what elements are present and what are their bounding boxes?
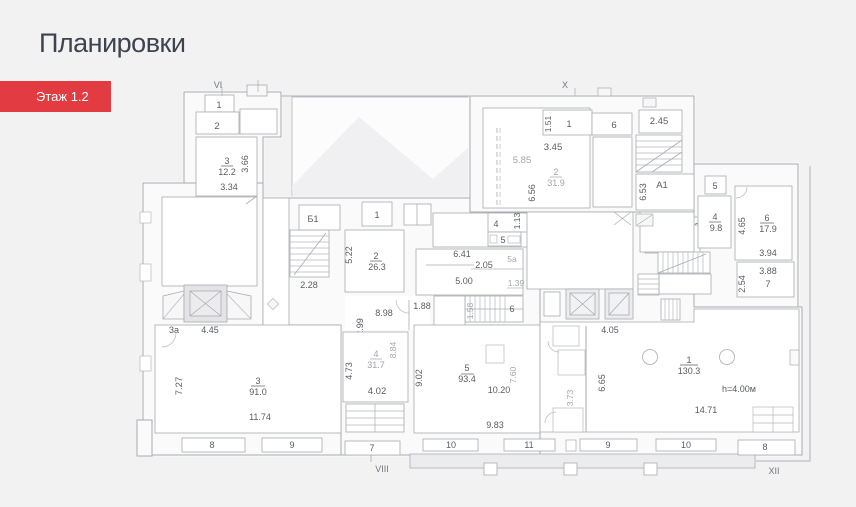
svg-text:А1: А1	[656, 180, 668, 191]
svg-text:8.98: 8.98	[375, 308, 393, 318]
svg-text:3.34: 3.34	[220, 182, 238, 192]
svg-text:5: 5	[500, 235, 505, 245]
svg-text:4: 4	[373, 349, 378, 359]
svg-text:XII: XII	[768, 466, 779, 476]
svg-text:10: 10	[446, 440, 456, 450]
svg-text:130.3: 130.3	[678, 366, 701, 376]
svg-text:2.05: 2.05	[475, 260, 493, 270]
svg-text:31.7: 31.7	[367, 360, 385, 370]
svg-text:5: 5	[464, 363, 469, 373]
svg-text:8.84: 8.84	[388, 341, 398, 358]
svg-text:10: 10	[681, 440, 691, 450]
svg-text:2.45: 2.45	[650, 116, 669, 127]
svg-text:3.88: 3.88	[759, 266, 777, 276]
svg-text:1.13: 1.13	[512, 212, 522, 229]
svg-text:6.65: 6.65	[597, 374, 607, 392]
svg-text:3.94: 3.94	[759, 248, 777, 258]
svg-text:6.56: 6.56	[527, 184, 537, 202]
svg-text:9: 9	[605, 440, 610, 450]
svg-text:VI: VI	[214, 80, 223, 90]
svg-text:2: 2	[373, 251, 378, 261]
svg-text:VIII: VIII	[375, 464, 389, 474]
svg-text:4.02: 4.02	[368, 386, 387, 397]
svg-text:4.45: 4.45	[201, 325, 219, 335]
svg-text:7: 7	[369, 443, 374, 453]
svg-text:3: 3	[224, 156, 229, 166]
svg-text:8: 8	[209, 440, 214, 450]
svg-text:4.65: 4.65	[737, 217, 747, 235]
svg-text:2: 2	[214, 121, 219, 132]
svg-text:91.0: 91.0	[249, 387, 267, 397]
svg-text:1.58: 1.58	[465, 302, 475, 319]
svg-text:Б1: Б1	[308, 214, 319, 224]
svg-text:6: 6	[764, 213, 769, 223]
svg-text:6.41: 6.41	[453, 249, 471, 259]
svg-text:2: 2	[553, 167, 558, 177]
svg-text:9: 9	[289, 440, 294, 450]
svg-text:1: 1	[566, 119, 571, 129]
svg-text:9.02: 9.02	[414, 369, 424, 387]
svg-text:3.66: 3.66	[240, 155, 250, 173]
svg-text:4: 4	[712, 212, 717, 222]
svg-text:1: 1	[374, 210, 379, 220]
svg-text:7.27: 7.27	[174, 377, 185, 396]
svg-text:9.83: 9.83	[486, 420, 504, 430]
svg-text:4: 4	[493, 219, 498, 229]
svg-text:X: X	[562, 80, 568, 90]
svg-text:2.54: 2.54	[737, 275, 747, 293]
svg-text:93.4: 93.4	[458, 374, 476, 384]
svg-text:14.71: 14.71	[695, 405, 718, 415]
svg-text:1.39: 1.39	[508, 278, 525, 288]
svg-text:3.73: 3.73	[565, 389, 575, 406]
svg-text:4.73: 4.73	[344, 362, 354, 380]
svg-text:5а: 5а	[507, 254, 517, 264]
svg-text:11.74: 11.74	[249, 412, 271, 422]
svg-text:8: 8	[762, 442, 767, 452]
svg-text:3: 3	[255, 376, 260, 386]
svg-text:6.53: 6.53	[638, 183, 648, 201]
svg-text:7.60: 7.60	[508, 366, 518, 383]
svg-text:4.05: 4.05	[601, 325, 619, 335]
svg-text:5.00: 5.00	[455, 276, 473, 286]
svg-text:5.22: 5.22	[344, 246, 354, 264]
svg-text:1.51: 1.51	[543, 115, 553, 132]
svg-text:17.9: 17.9	[759, 224, 777, 234]
svg-text:10.20: 10.20	[488, 385, 511, 395]
svg-text:1.88: 1.88	[413, 301, 431, 311]
svg-text:6: 6	[509, 304, 514, 314]
svg-text:1: 1	[686, 355, 691, 365]
svg-text:h=4.00м: h=4.00м	[722, 384, 756, 394]
svg-text:5: 5	[712, 181, 717, 191]
svg-text:11: 11	[524, 440, 533, 450]
svg-text:3a: 3a	[169, 325, 179, 335]
svg-text:7: 7	[765, 279, 770, 289]
svg-text:12.2: 12.2	[218, 167, 236, 177]
svg-text:2.28: 2.28	[300, 280, 318, 290]
svg-text:5.85: 5.85	[513, 155, 532, 166]
svg-text:9.8: 9.8	[710, 223, 723, 233]
svg-text:3.45: 3.45	[544, 142, 563, 153]
svg-text:6: 6	[611, 120, 616, 131]
svg-text:1: 1	[216, 100, 221, 110]
svg-text:26.3: 26.3	[368, 262, 386, 272]
svg-text:31.9: 31.9	[547, 178, 565, 188]
